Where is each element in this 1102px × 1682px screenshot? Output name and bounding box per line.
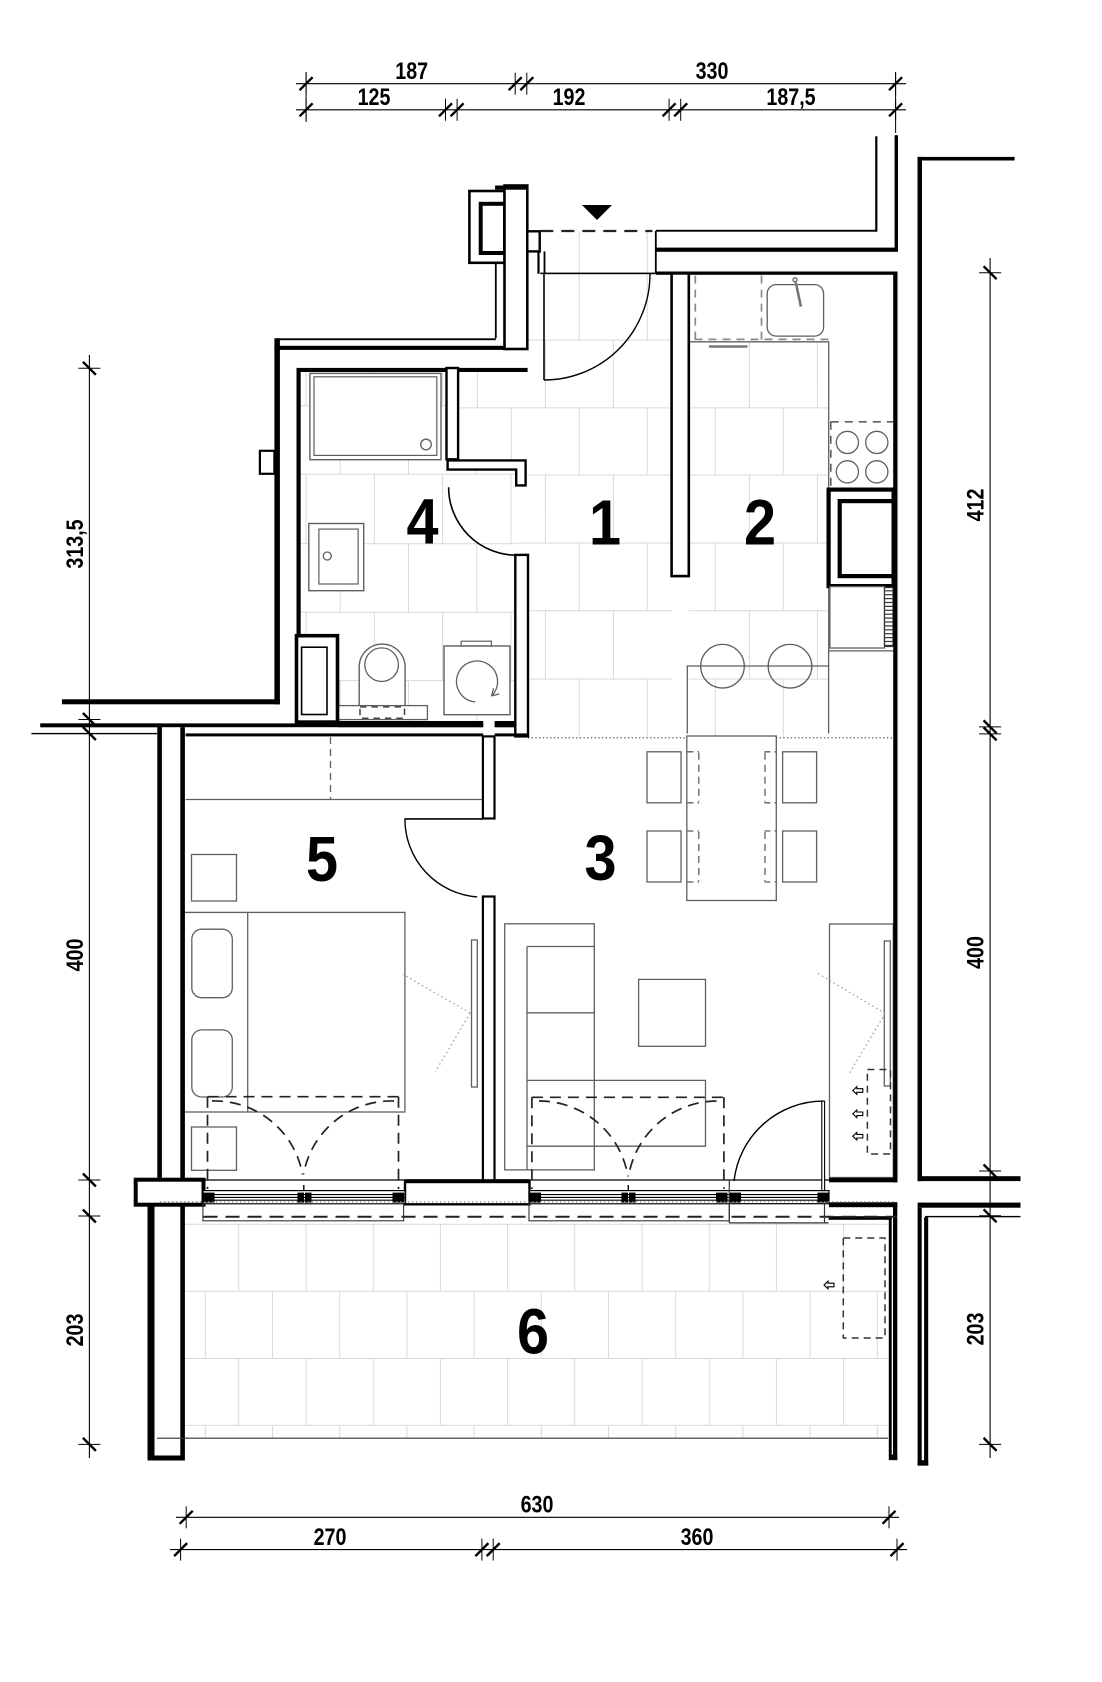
svg-text:2: 2	[744, 487, 776, 558]
svg-text:6: 6	[517, 1296, 549, 1367]
svg-text:412: 412	[962, 489, 989, 522]
svg-text:4: 4	[406, 486, 438, 557]
svg-text:1: 1	[589, 487, 621, 558]
svg-text:187,5: 187,5	[766, 83, 815, 110]
svg-text:360: 360	[681, 1523, 714, 1550]
svg-text:187: 187	[395, 57, 428, 84]
svg-text:400: 400	[61, 939, 88, 972]
svg-text:125: 125	[358, 83, 391, 110]
svg-text:3: 3	[584, 822, 616, 893]
svg-text:203: 203	[962, 1313, 989, 1346]
svg-text:400: 400	[962, 936, 989, 969]
svg-text:203: 203	[61, 1314, 88, 1347]
svg-text:192: 192	[553, 83, 586, 110]
svg-text:630: 630	[521, 1491, 554, 1518]
svg-text:270: 270	[314, 1523, 347, 1550]
svg-text:5: 5	[306, 823, 338, 894]
svg-text:330: 330	[696, 57, 729, 84]
svg-text:313,5: 313,5	[61, 519, 88, 568]
